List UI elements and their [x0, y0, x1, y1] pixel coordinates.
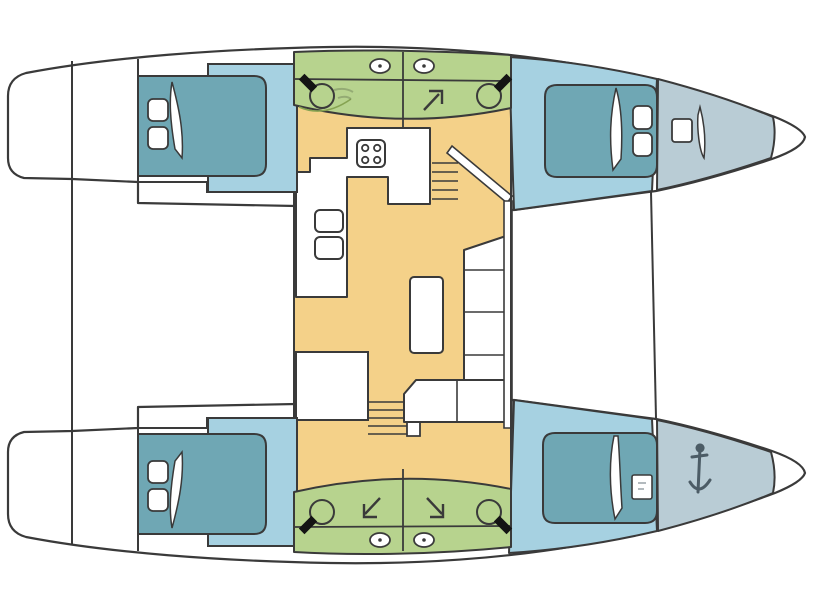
- pillow: [633, 106, 652, 129]
- double-berth: [545, 85, 657, 177]
- salon-table: [410, 277, 443, 353]
- deck-hatch-icon: [370, 533, 390, 547]
- double-berth: [138, 434, 266, 534]
- cockpit-area: [74, 180, 294, 430]
- pillow: [148, 461, 168, 483]
- deck-hatch-icon: [414, 59, 434, 73]
- salon-bench: [404, 380, 506, 422]
- pillow: [148, 489, 168, 511]
- stove-icon: [357, 140, 385, 167]
- deck-hatch-icon: [632, 475, 652, 499]
- bow-locker-stbd: [657, 420, 775, 531]
- pillow: [148, 127, 168, 149]
- bow-locker-area: [657, 420, 775, 531]
- cabin-stbd-aft: [138, 418, 297, 546]
- sink-icon: [315, 237, 343, 259]
- catamaran-deck-plan: [0, 0, 816, 612]
- deck-hatch-icon: [370, 59, 390, 73]
- double-berth: [138, 76, 266, 176]
- floor-plan: [0, 0, 816, 612]
- pillow: [633, 133, 652, 156]
- cabin-stbd-fwd: [509, 400, 657, 553]
- deck-hatch-icon: [672, 119, 692, 142]
- salon-cabinet: [296, 352, 368, 420]
- cabin-port-aft: [138, 64, 297, 192]
- bow-locker-port: [657, 79, 775, 190]
- sink-icon: [315, 210, 343, 232]
- deck-hatch-icon: [414, 533, 434, 547]
- pillow: [148, 99, 168, 121]
- forward-crossbeam: [651, 192, 656, 418]
- cabin-port-fwd: [509, 57, 657, 210]
